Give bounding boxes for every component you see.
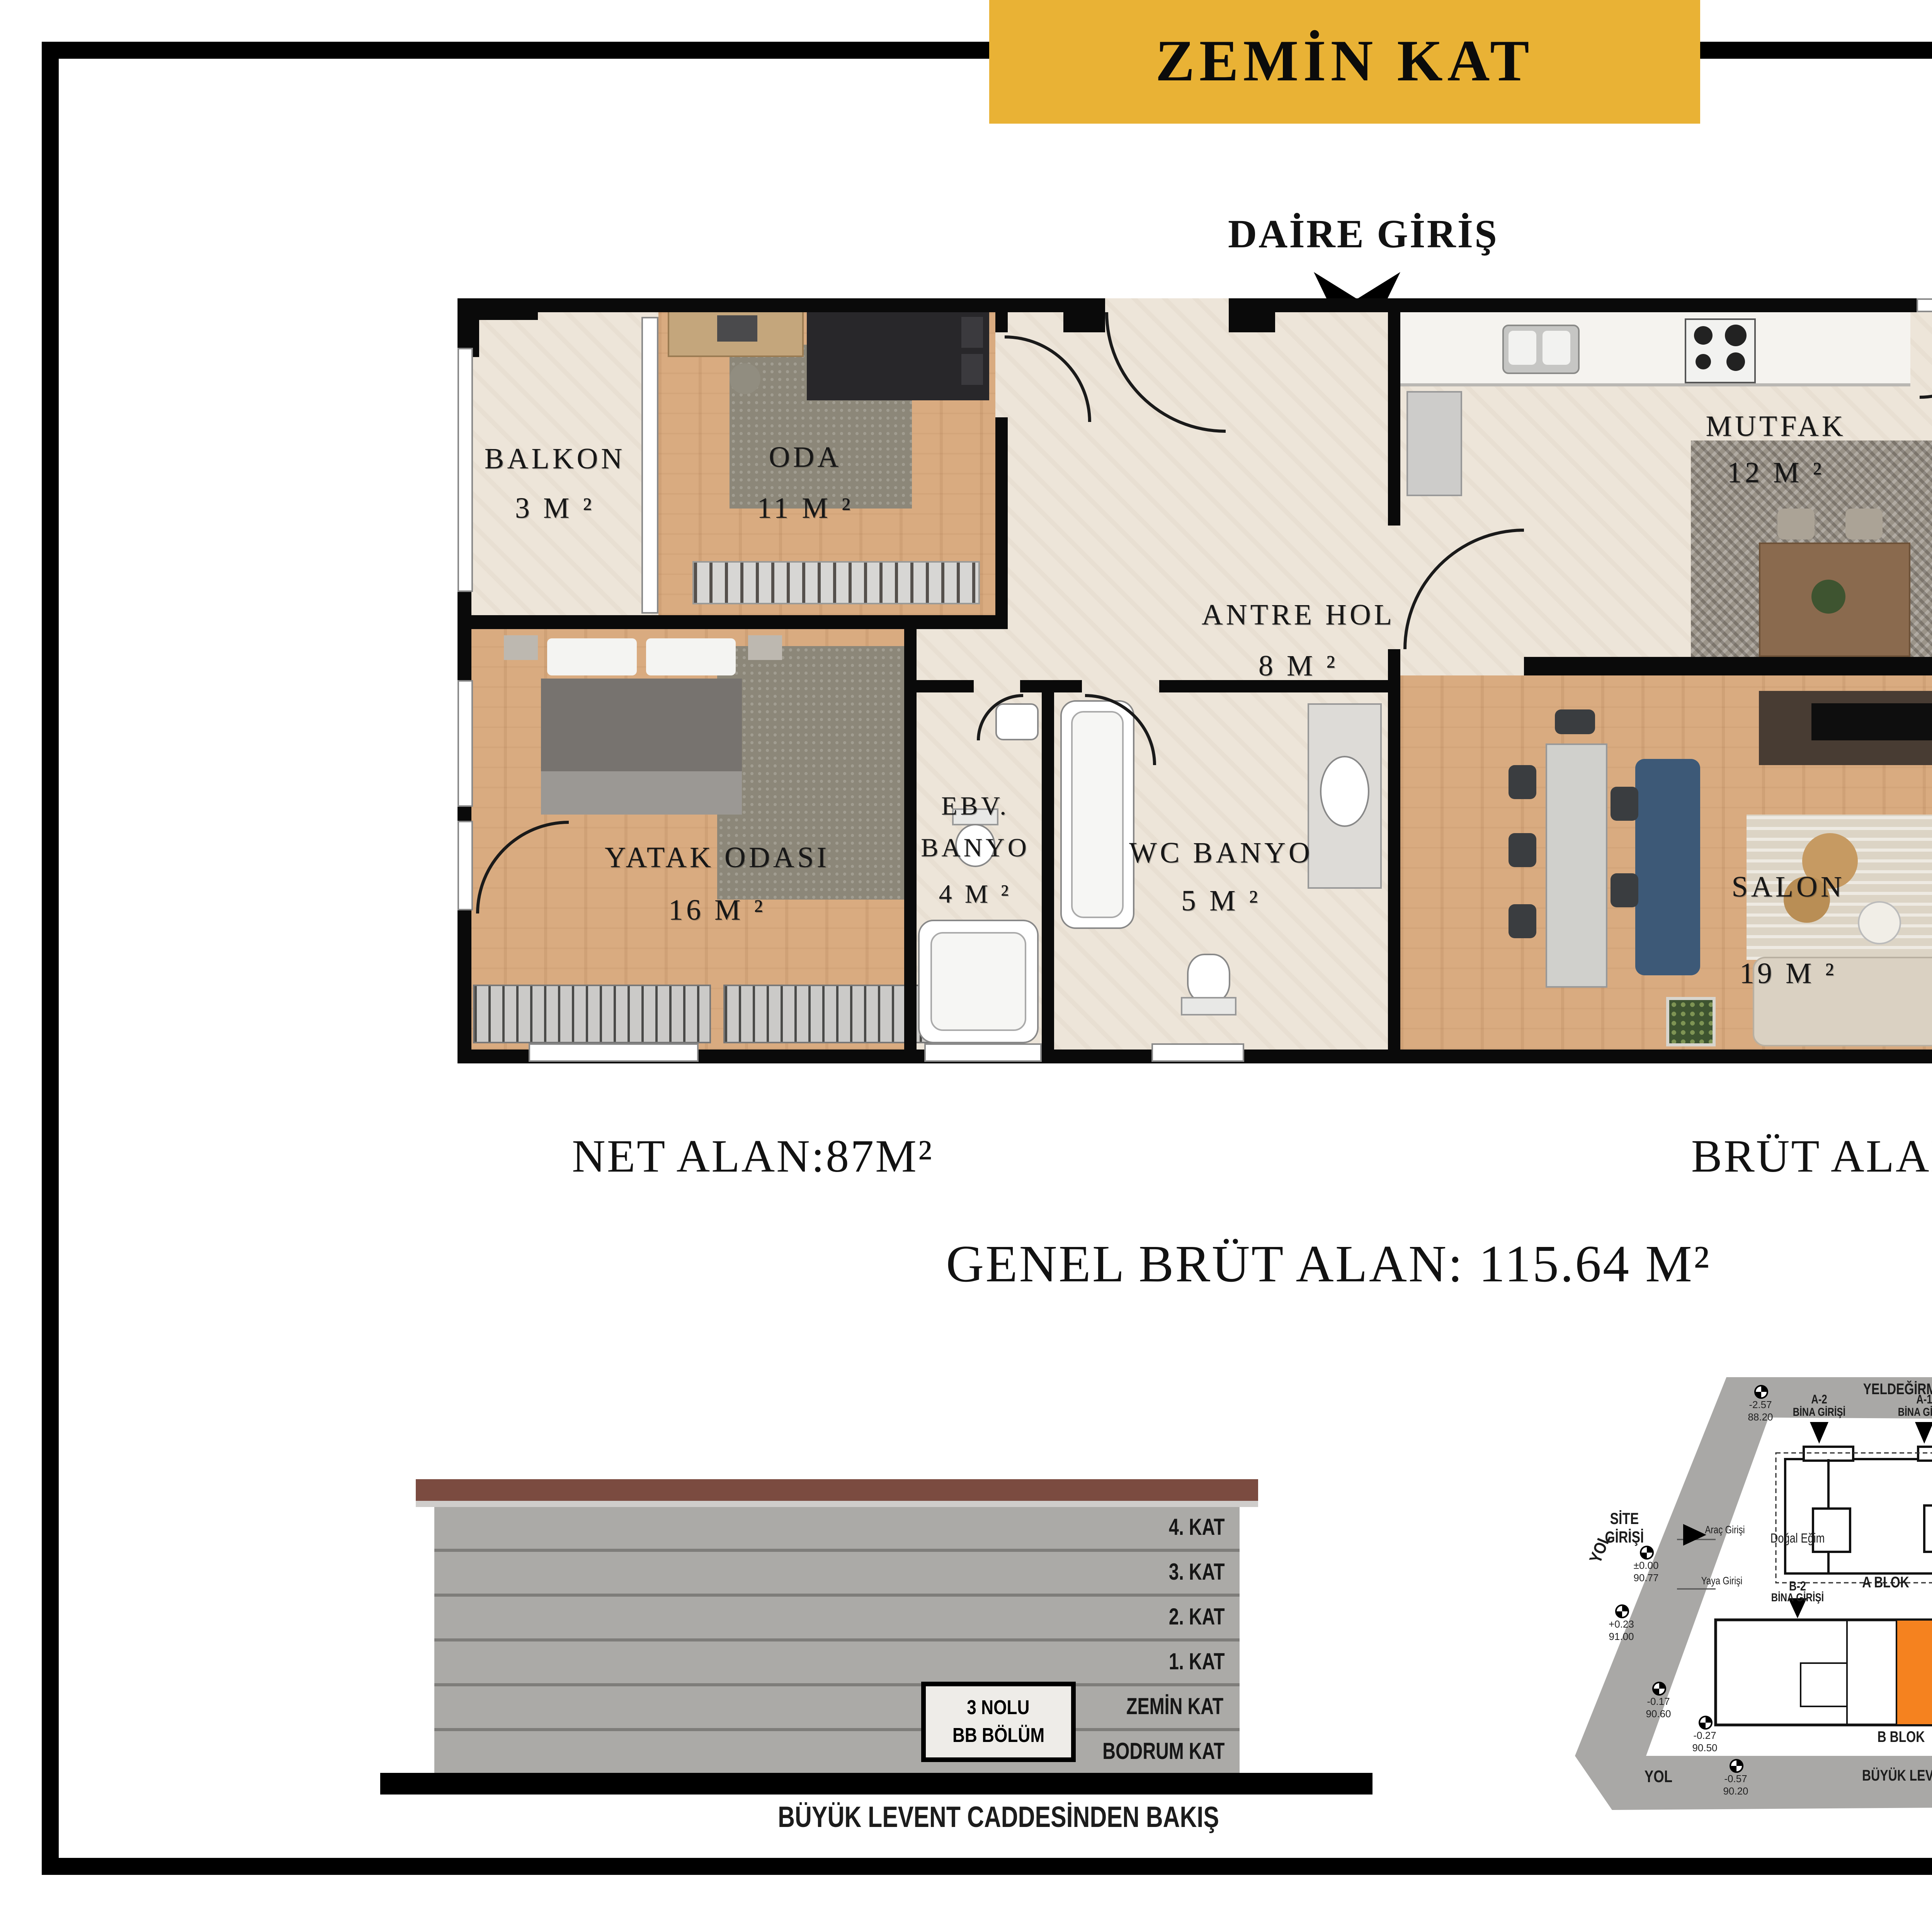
dining-chair: [1509, 833, 1536, 867]
wall: [457, 298, 1105, 312]
room-area: 4 M ²: [904, 881, 1046, 907]
wall: [995, 298, 1008, 332]
dining-chair: [1777, 509, 1815, 539]
sink-basin: [1509, 331, 1536, 365]
elevation-caption: BÜYÜK LEVENT CADDESİNDEN BAKIŞ: [628, 1802, 1369, 1835]
window: [457, 680, 473, 807]
room-area: 3 M ²: [464, 495, 646, 524]
floor-plan: BALKON 3 M ² ODA 11 M ² ANTRE HOL 8 M ² …: [457, 298, 1932, 1063]
wall: [1524, 657, 1932, 675]
pillow: [961, 317, 983, 348]
site-plan-drawing: [1553, 1373, 1932, 1813]
ground-line: [380, 1773, 1372, 1795]
apartment-type: 2+1 DAİRE: [1777, 230, 1932, 284]
balcony-door: [1917, 298, 1932, 312]
poster-page: ZEMİN KAT DAİRE GİRİŞ 2+1 DAİRE: [0, 0, 1932, 1917]
room-label: WC BANYO: [1082, 839, 1360, 869]
floor-label: BODRUM KAT: [1102, 1739, 1224, 1765]
burner: [1694, 326, 1713, 345]
wall-column: [1063, 298, 1105, 332]
laptop: [717, 315, 757, 342]
room-area: 5 M ²: [1082, 887, 1360, 917]
floor-row: 1. KAT: [434, 1641, 1240, 1686]
unit-number: 3 NOLU: [967, 1695, 1030, 1722]
balcony-door: [457, 821, 473, 910]
room-label: MUTFAK: [1683, 413, 1869, 442]
wall: [1042, 691, 1054, 1051]
pillow: [547, 638, 637, 675]
room-label: EBV.: [904, 793, 1046, 819]
room-area: 8 M ²: [1175, 652, 1422, 682]
room-label: ANTRE HOL: [1175, 601, 1422, 631]
wall: [1054, 680, 1082, 692]
site-marker: -0.5790.20: [1708, 1759, 1764, 1798]
wardrobe: [473, 985, 711, 1043]
stove: [1685, 318, 1756, 383]
wall: [1388, 298, 1400, 526]
floor-label: ZEMİN KAT: [1127, 1694, 1224, 1720]
window: [1151, 1043, 1244, 1062]
roof-strip: [416, 1501, 1258, 1507]
room-label: YATAK ODASI: [532, 844, 903, 873]
closet-strip: [692, 561, 980, 604]
site-marker: +0.2391.00: [1594, 1604, 1649, 1644]
floor-row: 4. KAT: [434, 1507, 1240, 1552]
site-marker: -0.2790.50: [1677, 1716, 1733, 1755]
site-marker: ±0.0090.77: [1618, 1546, 1674, 1585]
road-label: YOL: [1636, 1768, 1680, 1787]
window: [924, 1043, 1042, 1062]
building-entrance-label: BİNA GİRİŞİ: [1763, 1592, 1832, 1605]
general-gross-area-text: GENEL BRÜT ALAN: 115.64 M²: [895, 1238, 1762, 1293]
pillow: [646, 638, 736, 675]
table-plant: [1811, 580, 1845, 614]
floor-row: 2. KAT: [434, 1597, 1240, 1641]
burner: [1696, 354, 1711, 369]
elevation-body: 4. KAT 3. KAT 2. KAT 1. KAT ZEMİN KAT BO…: [434, 1507, 1240, 1773]
building-elevation: 4. KAT 3. KAT 2. KAT 1. KAT ZEMİN KAT BO…: [380, 1476, 1372, 1824]
site-plan: YELDEĞİRMENİ CADDESİ A-2 A-1 BİNA GİRİŞİ…: [1553, 1373, 1932, 1813]
bathtub-inner: [930, 932, 1026, 1031]
dining-chair: [1509, 904, 1536, 938]
double-bed: [541, 679, 742, 771]
dining-chair: [1845, 509, 1883, 539]
wall: [904, 680, 974, 692]
toilet-tank: [1181, 997, 1236, 1015]
block-b-label: B BLOK: [1864, 1730, 1932, 1747]
sink: [1320, 756, 1369, 827]
roof: [416, 1479, 1258, 1501]
toilet: [1187, 954, 1230, 1003]
entrance-label: DAİRE GİRİŞ: [1147, 213, 1580, 255]
gross-area-text: BRÜT ALAN: 98 M²: [1646, 1133, 1932, 1182]
site-entrance-line1: SİTE: [1592, 1512, 1656, 1530]
net-area-text: NET ALAN:87M²: [522, 1133, 983, 1182]
wall: [1388, 649, 1400, 1050]
sink-basin: [1543, 331, 1570, 365]
window: [529, 1043, 699, 1062]
tv: [1811, 703, 1932, 740]
title-banner: ZEMİN KAT: [989, 0, 1700, 124]
room-area: 12 M ²: [1683, 459, 1869, 488]
burner: [1726, 352, 1745, 371]
wall-column: [1229, 298, 1275, 332]
floor-row: ZEMİN KAT: [434, 1686, 1240, 1731]
door-arc: [1920, 315, 1932, 399]
street-label-bottom: BÜYÜK LEVENT CADDESİ: [1816, 1768, 1932, 1786]
burner: [1725, 325, 1747, 346]
kitchen-counter: [1400, 312, 1910, 386]
wall: [995, 417, 1008, 628]
wall: [1229, 298, 1917, 312]
room-area: 11 M ²: [705, 495, 906, 524]
room-label: ODA: [705, 444, 906, 473]
nightstand: [504, 635, 538, 660]
room-label: SALON: [1665, 873, 1912, 903]
wall: [457, 615, 1008, 629]
floor-label: 3. KAT: [1168, 1560, 1224, 1586]
plant: [1666, 997, 1716, 1046]
nightstand: [748, 635, 782, 660]
room-label: BANYO: [895, 835, 1056, 861]
bed-blanket: [541, 771, 742, 815]
dining-table: [1546, 743, 1607, 988]
block-a-label: A BLOK: [1849, 1575, 1923, 1592]
unit-callout-box: 3 NOLU BB BÖLÜM: [921, 1682, 1076, 1762]
pedestrian-entrance-label: Yaya Girişi: [1693, 1577, 1750, 1589]
natural-slope-label: Doğal Eğim: [1760, 1532, 1835, 1546]
floor-row: BODRUM KAT: [434, 1731, 1240, 1773]
unit-section: BB BÖLÜM: [952, 1722, 1044, 1749]
floor-label: 1. KAT: [1168, 1649, 1224, 1675]
desk-chair: [730, 363, 760, 394]
room-label: BALKON: [464, 445, 646, 475]
room-area: 16 M ²: [532, 896, 903, 926]
floor-row: 3. KAT: [434, 1552, 1240, 1597]
site-marker: -2.5788.20: [1733, 1385, 1788, 1424]
building-entrance-label: BİNA GİRİŞİ: [1787, 1407, 1851, 1420]
dining-chair: [1509, 765, 1536, 799]
floor-title: ZEMİN KAT: [1155, 28, 1534, 96]
room-area: 19 M ²: [1665, 960, 1912, 989]
pillow: [961, 354, 983, 385]
fridge: [1406, 391, 1462, 496]
vehicle-entrance-label: Araç Girişi: [1696, 1526, 1753, 1538]
floor-label: 4. KAT: [1168, 1515, 1224, 1541]
blue-sofa: [1635, 759, 1700, 975]
dining-chair: [1555, 709, 1595, 734]
side-table: [1858, 901, 1901, 944]
floor-label: 2. KAT: [1168, 1604, 1224, 1631]
dining-chair: [1611, 873, 1638, 907]
wall: [1020, 680, 1054, 692]
building-entrance-label: BİNA GİRİŞİ: [1892, 1407, 1932, 1420]
dining-chair: [1611, 787, 1638, 821]
